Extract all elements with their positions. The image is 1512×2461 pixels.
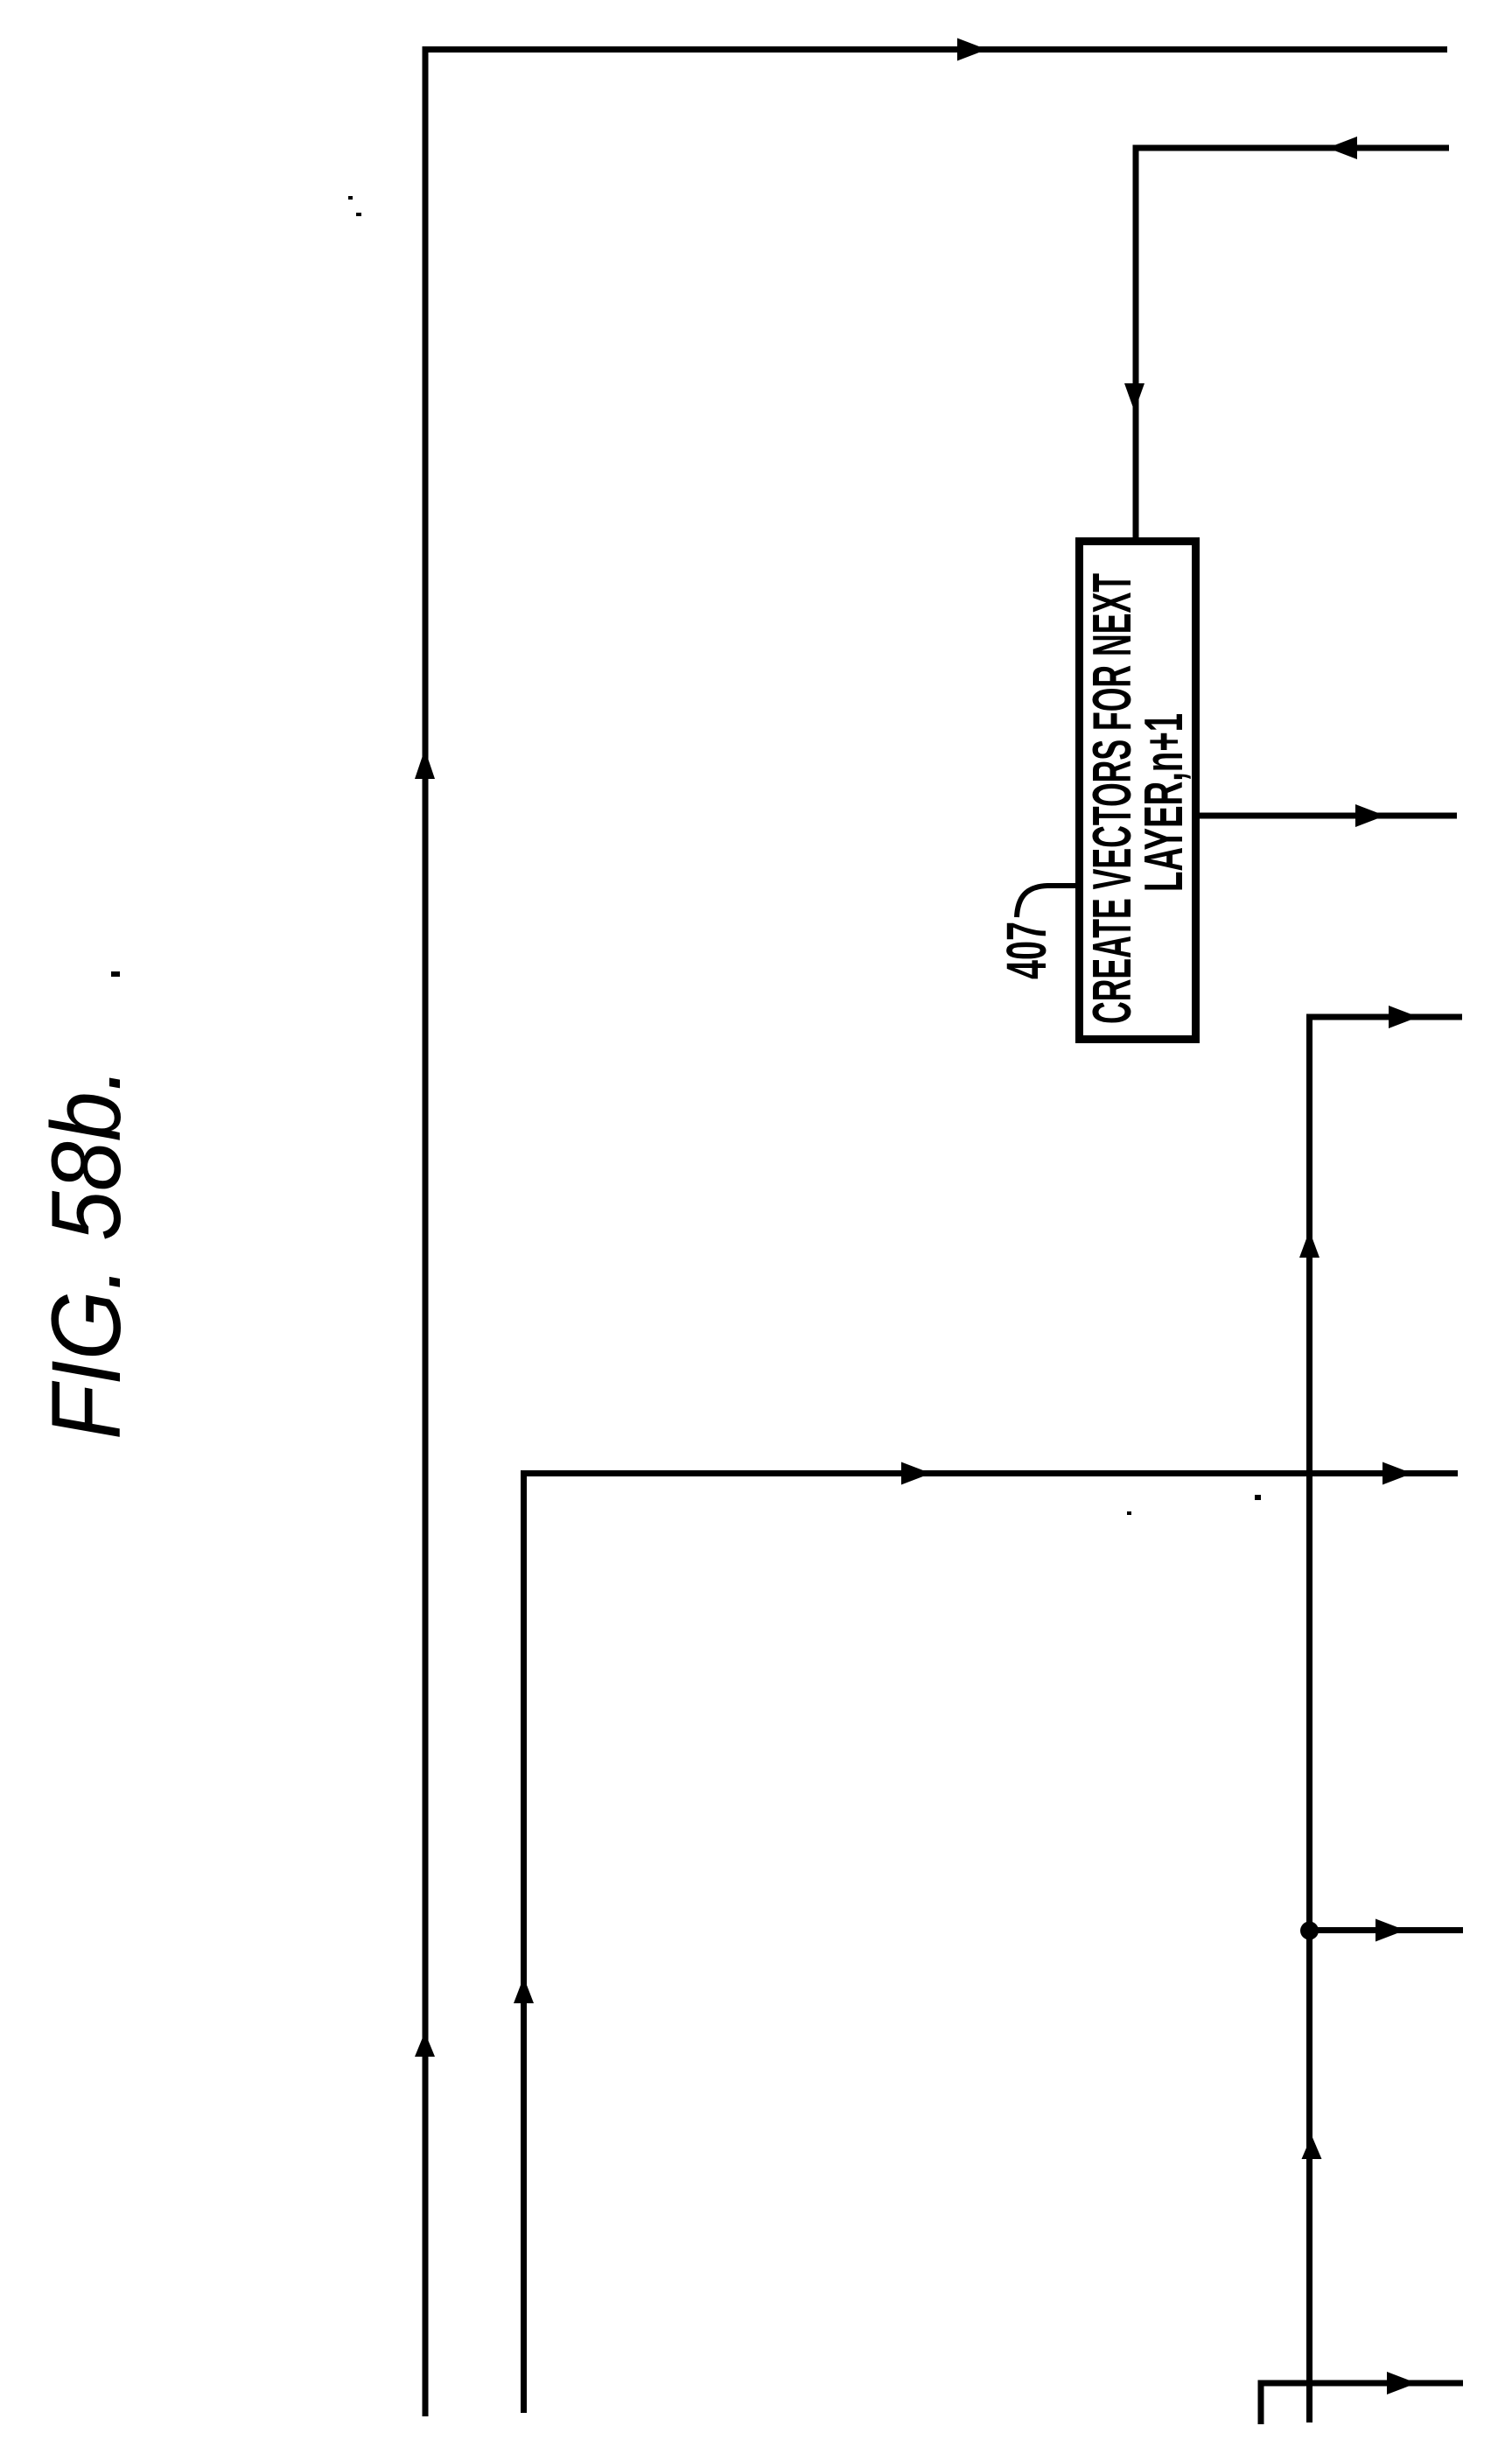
svg-text:407: 407	[995, 922, 1058, 979]
svg-text:FIG. 58b.: FIG. 58b.	[31, 1067, 141, 1440]
svg-text:LAYER,n+1: LAYER,n+1	[1134, 713, 1194, 892]
